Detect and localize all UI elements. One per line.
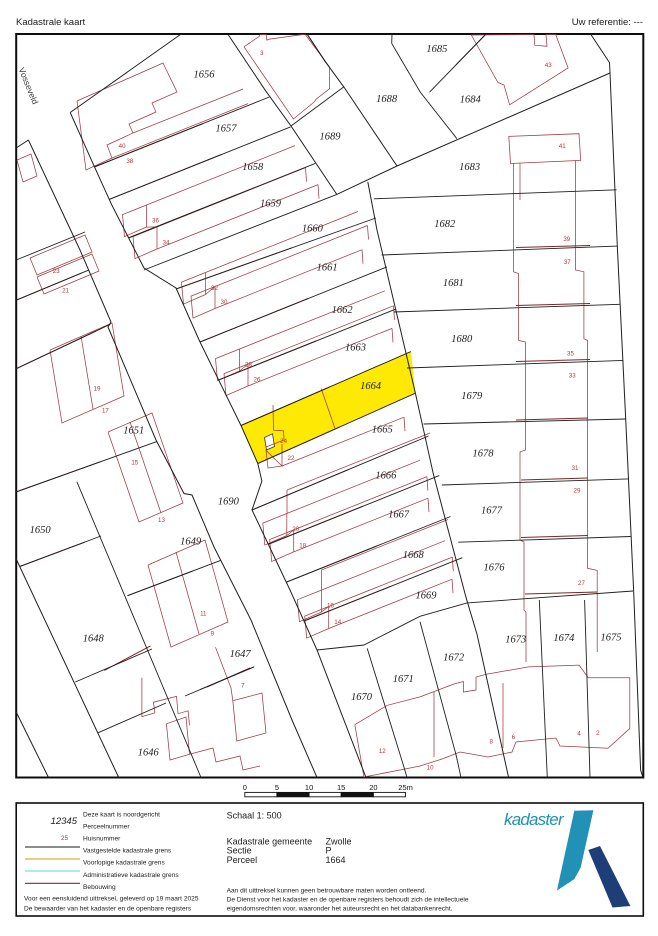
svg-text:24: 24 bbox=[280, 438, 287, 445]
svg-text:9: 9 bbox=[211, 631, 215, 638]
svg-text:33: 33 bbox=[569, 372, 576, 379]
svg-text:8: 8 bbox=[489, 739, 493, 746]
svg-text:11: 11 bbox=[200, 610, 207, 617]
svg-text:Bebouwing: Bebouwing bbox=[83, 884, 116, 891]
svg-text:1682: 1682 bbox=[434, 219, 456, 230]
svg-text:41: 41 bbox=[559, 143, 566, 150]
svg-text:1649: 1649 bbox=[180, 537, 202, 548]
svg-text:3: 3 bbox=[260, 50, 264, 57]
svg-text:20: 20 bbox=[369, 783, 377, 792]
svg-text:1647: 1647 bbox=[230, 649, 252, 660]
svg-text:1664: 1664 bbox=[360, 381, 382, 392]
svg-text:1662: 1662 bbox=[332, 305, 354, 316]
svg-text:Voorlopige kadastrale grens: Voorlopige kadastrale grens bbox=[83, 860, 165, 867]
svg-text:1667: 1667 bbox=[388, 509, 410, 520]
svg-text:5: 5 bbox=[275, 783, 279, 792]
svg-text:1688: 1688 bbox=[376, 94, 398, 105]
svg-text:1690: 1690 bbox=[218, 496, 240, 507]
svg-text:1679: 1679 bbox=[461, 391, 483, 402]
svg-text:21: 21 bbox=[62, 288, 69, 295]
svg-text:4: 4 bbox=[577, 731, 581, 738]
svg-text:1660: 1660 bbox=[302, 224, 324, 235]
svg-text:25m: 25m bbox=[398, 783, 413, 792]
svg-text:1678: 1678 bbox=[473, 449, 495, 460]
svg-text:10: 10 bbox=[427, 765, 434, 772]
svg-text:1677: 1677 bbox=[481, 506, 503, 517]
svg-text:1670: 1670 bbox=[351, 692, 373, 703]
svg-text:Aan dit uittreksel kunnen geen: Aan dit uittreksel kunnen geen betrouwba… bbox=[227, 888, 427, 895]
svg-text:26: 26 bbox=[254, 377, 261, 384]
svg-text:14: 14 bbox=[334, 619, 341, 626]
svg-text:34: 34 bbox=[163, 240, 170, 247]
svg-text:1669: 1669 bbox=[416, 590, 438, 601]
svg-text:38: 38 bbox=[126, 158, 133, 165]
svg-text:Huisnummer: Huisnummer bbox=[83, 836, 121, 843]
svg-text:27: 27 bbox=[578, 580, 585, 587]
svg-text:32: 32 bbox=[211, 285, 218, 292]
svg-text:1673: 1673 bbox=[505, 635, 526, 646]
svg-text:1650: 1650 bbox=[30, 525, 52, 536]
svg-text:1676: 1676 bbox=[484, 563, 506, 574]
svg-text:15: 15 bbox=[337, 783, 345, 792]
svg-text:Kadastrale kaart: Kadastrale kaart bbox=[16, 17, 86, 28]
svg-text:Deze kaart is noordgericht: Deze kaart is noordgericht bbox=[83, 812, 160, 819]
svg-text:43: 43 bbox=[545, 62, 552, 69]
svg-text:7: 7 bbox=[241, 683, 245, 690]
svg-text:2: 2 bbox=[596, 730, 600, 737]
svg-text:13: 13 bbox=[158, 517, 165, 524]
svg-text:40: 40 bbox=[119, 143, 126, 150]
svg-text:1648: 1648 bbox=[83, 634, 105, 645]
svg-text:18: 18 bbox=[299, 542, 306, 549]
svg-text:37: 37 bbox=[564, 259, 571, 266]
svg-text:1689: 1689 bbox=[320, 132, 342, 143]
svg-text:17: 17 bbox=[102, 407, 109, 414]
svg-text:1675: 1675 bbox=[601, 632, 622, 643]
svg-text:16: 16 bbox=[327, 603, 334, 610]
svg-text:Vastgestelde kadastrale grens: Vastgestelde kadastrale grens bbox=[83, 848, 172, 855]
svg-text:28: 28 bbox=[245, 362, 252, 369]
svg-text:1683: 1683 bbox=[459, 162, 480, 173]
svg-text:1674: 1674 bbox=[553, 633, 575, 644]
svg-text:1666: 1666 bbox=[375, 470, 397, 481]
svg-text:1651: 1651 bbox=[123, 425, 144, 436]
svg-text:1663: 1663 bbox=[345, 343, 366, 354]
svg-text:1672: 1672 bbox=[443, 652, 465, 663]
svg-text:1657: 1657 bbox=[216, 124, 238, 135]
svg-text:22: 22 bbox=[288, 455, 295, 462]
svg-text:1661: 1661 bbox=[317, 262, 338, 273]
svg-text:De bewaarder van het kadaster: De bewaarder van het kadaster en de open… bbox=[24, 906, 192, 913]
svg-text:Administratieve kadastrale gre: Administratieve kadastrale grens bbox=[83, 872, 179, 879]
svg-text:1684: 1684 bbox=[460, 95, 482, 106]
svg-text:1665: 1665 bbox=[372, 425, 393, 436]
svg-text:30: 30 bbox=[221, 299, 228, 306]
svg-text:10: 10 bbox=[305, 783, 313, 792]
svg-text:6: 6 bbox=[512, 734, 516, 741]
svg-text:1685: 1685 bbox=[426, 44, 447, 55]
svg-text:19: 19 bbox=[94, 386, 101, 393]
svg-text:25: 25 bbox=[61, 835, 69, 842]
svg-text:36: 36 bbox=[152, 218, 159, 225]
svg-text:eigendomsrechten voor, waarond: eigendomsrechten voor, waaronder het aut… bbox=[227, 906, 453, 913]
svg-text:12345: 12345 bbox=[51, 816, 78, 827]
svg-text:De Dienst voor het kadaster en: De Dienst voor het kadaster en de openba… bbox=[227, 897, 469, 904]
svg-text:1668: 1668 bbox=[403, 550, 425, 561]
svg-text:Voor een eensluidend uittrekse: Voor een eensluidend uittreksel, gelever… bbox=[24, 896, 199, 903]
svg-text:1671: 1671 bbox=[393, 674, 414, 685]
svg-text:Perceel: Perceel bbox=[227, 855, 258, 865]
svg-text:kadaster: kadaster bbox=[504, 810, 565, 829]
svg-text:1656: 1656 bbox=[194, 70, 216, 81]
svg-text:12: 12 bbox=[379, 748, 386, 755]
svg-text:Uw referentie: ---: Uw referentie: --- bbox=[572, 17, 643, 28]
svg-text:39: 39 bbox=[563, 236, 570, 243]
svg-text:1646: 1646 bbox=[138, 748, 160, 759]
svg-text:29: 29 bbox=[574, 488, 581, 495]
svg-text:15: 15 bbox=[131, 459, 138, 466]
svg-text:1658: 1658 bbox=[242, 162, 264, 173]
svg-text:23: 23 bbox=[53, 268, 60, 275]
svg-text:1681: 1681 bbox=[443, 278, 464, 289]
svg-text:31: 31 bbox=[572, 465, 579, 472]
svg-text:20: 20 bbox=[292, 526, 299, 533]
svg-text:Schaal 1: 500: Schaal 1: 500 bbox=[227, 811, 282, 821]
svg-text:1659: 1659 bbox=[260, 198, 282, 209]
svg-text:Perceelnummer: Perceelnummer bbox=[83, 824, 130, 831]
svg-text:0: 0 bbox=[243, 783, 247, 792]
svg-text:1680: 1680 bbox=[451, 334, 473, 345]
svg-text:35: 35 bbox=[567, 351, 574, 358]
svg-text:1664: 1664 bbox=[326, 855, 346, 865]
